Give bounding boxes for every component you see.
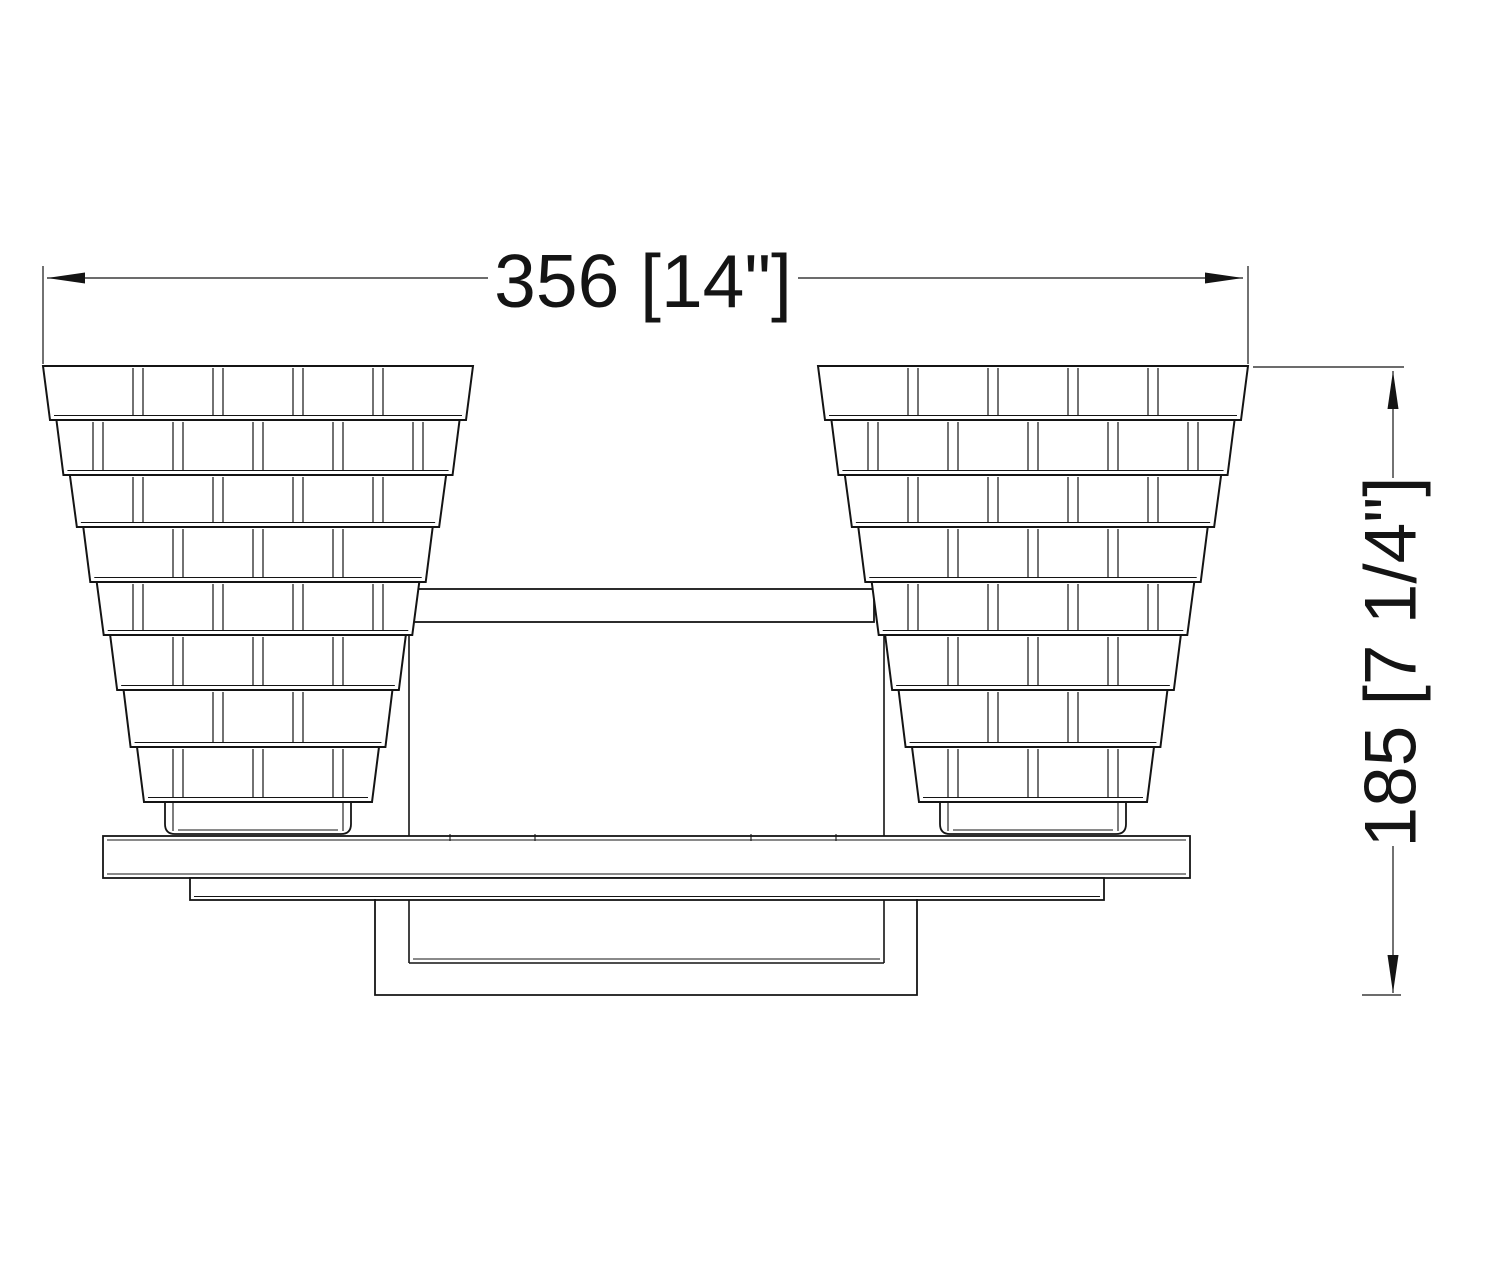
junction-box-outline xyxy=(375,899,917,995)
crossbar xyxy=(412,589,874,622)
height-dimension: 185 [7 1/4"] xyxy=(1253,367,1432,995)
shade-tier xyxy=(818,366,1248,420)
right-tiered-shade xyxy=(818,366,1248,802)
shade-tier xyxy=(872,582,1195,635)
fixture-line-drawing: 356 [14"] 185 [7 1/4"] xyxy=(0,0,1500,1280)
dimension-arrow-bottom xyxy=(1388,955,1399,993)
dimension-arrow-top xyxy=(1388,371,1399,409)
shade-tier xyxy=(899,690,1168,747)
shade-tier xyxy=(885,635,1181,690)
shade-tier xyxy=(70,475,446,527)
shade-tier xyxy=(97,582,420,635)
shade-tier xyxy=(831,420,1234,475)
shade-tier xyxy=(858,527,1207,582)
shade-tier xyxy=(124,690,393,747)
front-mounting-plate xyxy=(103,836,1190,878)
shade-tier xyxy=(43,366,473,420)
technical-drawing-page: 356 [14"] 185 [7 1/4"] xyxy=(0,0,1500,1280)
width-dimension-label: 356 [14"] xyxy=(494,239,792,323)
shade-tier xyxy=(845,475,1221,527)
shade-tier xyxy=(83,527,432,582)
height-dimension-label: 185 [7 1/4"] xyxy=(1351,477,1432,848)
fixture-geometry xyxy=(43,366,1248,995)
width-dimension: 356 [14"] xyxy=(43,239,1248,364)
shade-tier xyxy=(110,635,406,690)
dimension-arrow-left xyxy=(47,273,85,284)
shade-tier xyxy=(56,420,459,475)
dimension-arrow-right xyxy=(1205,273,1243,284)
